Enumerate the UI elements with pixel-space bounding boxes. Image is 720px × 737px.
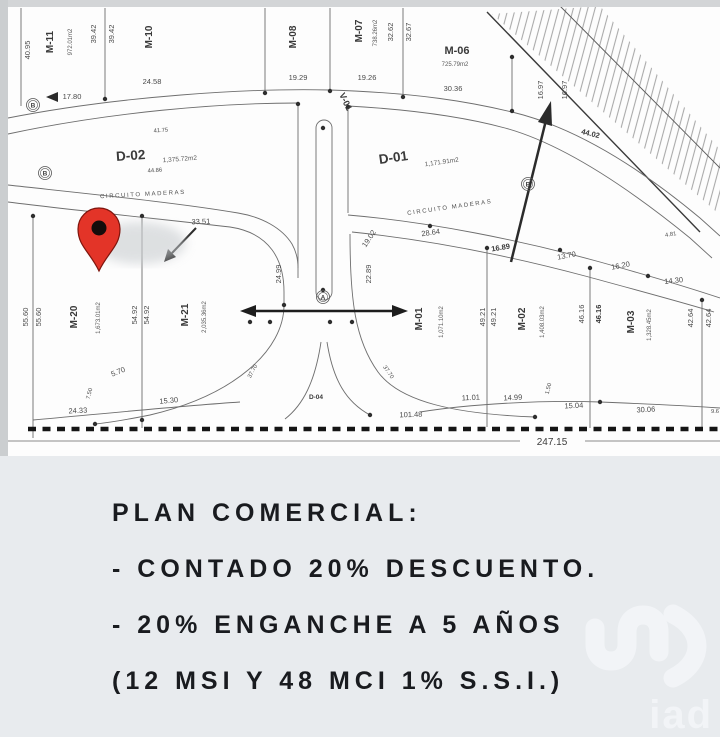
dim-label: 42.64 [686, 309, 695, 328]
lot-area: 1,071.10m2 [439, 305, 445, 337]
dim-label: 28.64 [421, 227, 441, 239]
dim-label: 5.70 [110, 365, 127, 379]
listing-image: B B B A M-11 972.01m2 M-10 [0, 0, 720, 737]
scan-edge-top [0, 0, 720, 7]
lot-area: 725.79m2 [442, 62, 469, 68]
map-pin-icon [78, 208, 186, 271]
lot-area: 1,328.45m2 [647, 308, 653, 340]
double-arrow-icon [240, 305, 408, 317]
plan-title: PLAN COMERCIAL: [112, 497, 599, 529]
dim-label: 4.81 [665, 231, 677, 239]
dim-label: 16.89 [491, 242, 511, 254]
dim-label: 24.99 [274, 265, 283, 284]
dim-label: 39.42 [89, 25, 98, 44]
dim-label: 49.21 [478, 308, 487, 327]
lot-area: 738.26m2 [373, 19, 379, 46]
circled-marker-b3: B [522, 178, 535, 191]
dim-label: 24.58 [143, 77, 162, 86]
lot-label: D-04 [309, 394, 323, 401]
dim-label: 30.36 [444, 84, 463, 93]
dim-label: 16.97 [560, 81, 569, 100]
commercial-plan-panel: iad PLAN COMERCIAL: - CONTADO 20% DESCUE… [0, 456, 720, 737]
lot-label: V-01 [337, 91, 354, 112]
dim-label: 54.92 [142, 306, 151, 325]
dim-label: 30.06 [636, 405, 655, 415]
dim-label: 41.75 [153, 128, 168, 135]
marker-letter: B [31, 103, 36, 110]
marker-letter: B [526, 182, 531, 189]
lot-label: M-01 [414, 307, 425, 330]
site-plan: B B B A M-11 972.01m2 M-10 [0, 0, 720, 456]
marker-letter: A [321, 295, 326, 302]
lot-area: 972.01m2 [68, 28, 74, 55]
lot-label: M-07 [354, 19, 365, 42]
lot-label: M-21 [180, 303, 191, 326]
dim-label: 14.30 [664, 275, 684, 286]
lot-label: M-08 [288, 25, 299, 48]
dim-label: 19.29 [289, 73, 308, 82]
scan-edge-left [0, 0, 8, 456]
dim-label: 1.50 [545, 383, 554, 395]
dim-label: 22.89 [364, 265, 373, 284]
lot-area: 1,673.01m2 [96, 301, 102, 333]
site-plan-drawing: B B B A M-11 972.01m2 M-10 [0, 0, 720, 456]
dim-label: 17.80 [63, 92, 82, 101]
dim-label: 33.51 [191, 217, 210, 227]
street-label: CIRCUITO MADERAS [100, 190, 186, 200]
commercial-plan-text: PLAN COMERCIAL: - CONTADO 20% DESCUENTO.… [112, 497, 599, 697]
lot-area: 1,171.91m2 [424, 157, 459, 169]
dim-label: 11.01 [462, 393, 481, 403]
lot-label: M-03 [626, 310, 637, 333]
dim-label: 46.16 [577, 305, 586, 324]
lot-label: D-01 [378, 148, 410, 167]
dim-label: 42.64 [704, 309, 713, 328]
dim-label: 44.86 [147, 168, 162, 175]
dim-label: 55.60 [34, 308, 43, 327]
lot-area: 1,408.03m2 [540, 305, 546, 337]
dim-label: 32.62 [386, 23, 395, 42]
dim-label: 9.6 [711, 409, 719, 415]
dim-label: 15.04 [564, 401, 583, 411]
dim-label: 15.30 [159, 395, 178, 406]
plan-bullet-enganche: - 20% ENGANCHE A 5 AÑOS [112, 609, 599, 641]
lot-label: M-06 [444, 45, 469, 57]
iad-logo-icon [595, 614, 697, 678]
plan-bullet-contado: - CONTADO 20% DESCUENTO. [112, 553, 599, 585]
dim-label: 39.42 [107, 25, 116, 44]
plan-bullet-msi: (12 MSI Y 48 MCI 1% S.S.I.) [112, 665, 599, 697]
lot-label: M-11 [45, 30, 56, 53]
lot-area: 1,375.72m2 [163, 155, 198, 164]
street-label: CIRCUITO MADERAS [407, 199, 493, 217]
marker-letter: B [43, 171, 48, 178]
dim-label: 16.97 [536, 81, 545, 100]
boundary-total-dim: 247.15 [537, 437, 568, 448]
dim-label: 44.02 [580, 127, 600, 140]
dim-label: 101.48 [399, 410, 422, 420]
dim-label: 37.70 [247, 364, 259, 380]
property-boundary [8, 429, 720, 441]
left-arrowhead-icon [46, 92, 58, 102]
dim-label: 32.67 [404, 23, 413, 42]
hatched-boundary [487, 6, 720, 232]
dim-label: 19.02 [360, 228, 378, 249]
lot-label: M-20 [69, 305, 80, 328]
dim-label: 19.26 [358, 73, 377, 82]
dim-label: 54.92 [130, 306, 139, 325]
dim-label: 46.16 [594, 305, 603, 324]
circled-marker-b2: B [39, 167, 52, 180]
lot-label: M-02 [517, 307, 528, 330]
lot-label: M-10 [144, 25, 155, 48]
circled-marker-a: A [317, 291, 330, 304]
dim-label: 40.95 [23, 41, 32, 60]
dim-label: 55.60 [21, 308, 30, 327]
watermark-brand: iad [649, 693, 713, 737]
lot-label: D-02 [116, 147, 146, 164]
dim-label: 7.50 [86, 388, 95, 400]
dim-label: 24.33 [68, 406, 87, 416]
dim-label: 14.99 [503, 393, 522, 403]
circled-marker-b1: B [27, 99, 40, 112]
dim-label: 49.21 [489, 308, 498, 327]
lot-area: 2,035.36m2 [202, 300, 208, 332]
